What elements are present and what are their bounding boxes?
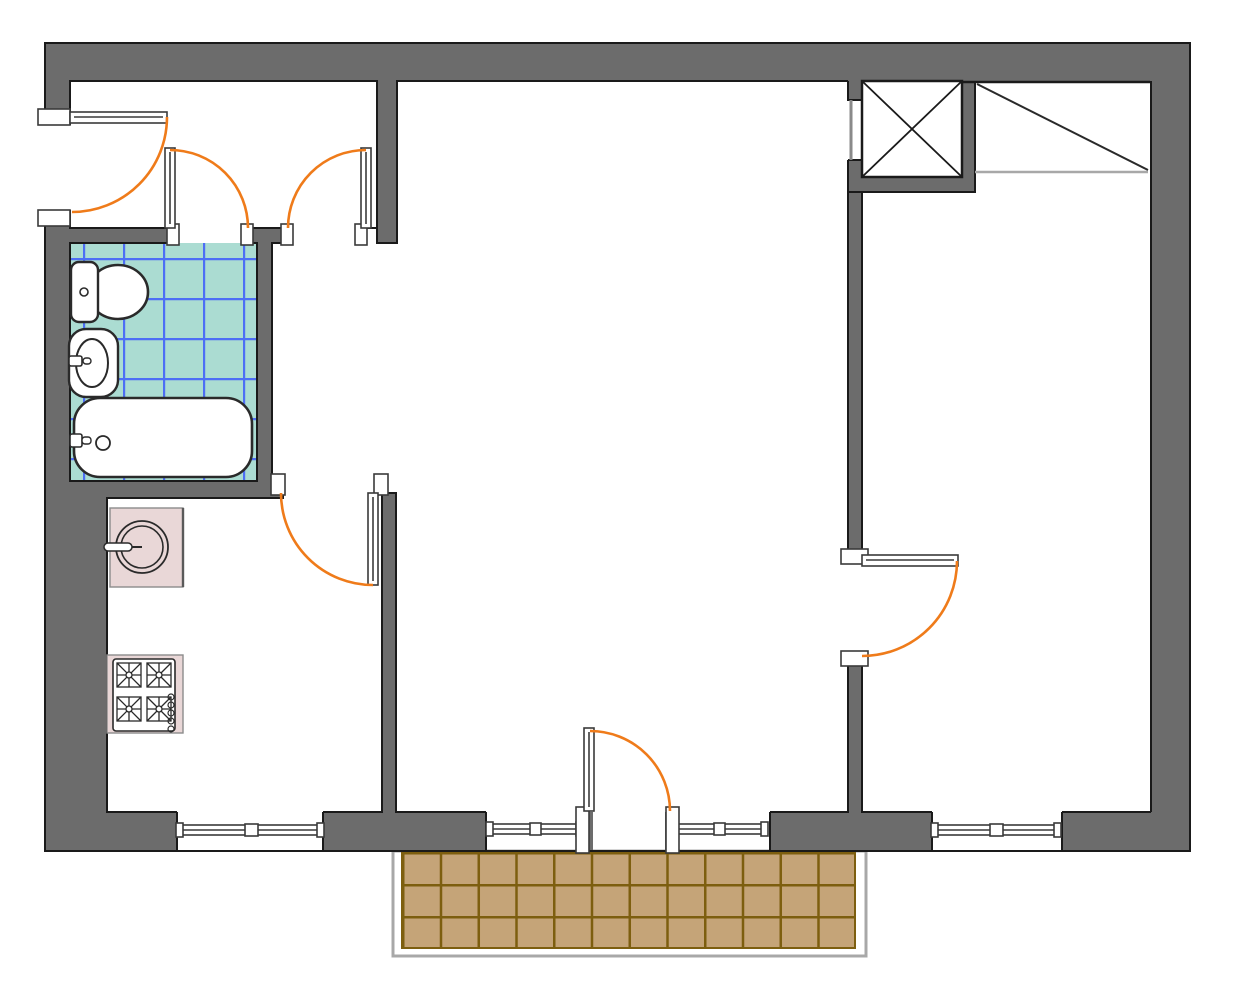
hallway-door — [361, 148, 371, 228]
wall-left-mid — [45, 210, 70, 481]
living-window-right — [669, 822, 768, 836]
wall-bottom-5 — [770, 812, 932, 851]
living-window-left — [486, 822, 583, 836]
wall-bottom-6 — [1062, 812, 1151, 851]
balcony — [393, 851, 866, 956]
kitchen-counter — [104, 508, 183, 587]
floor-plan — [0, 0, 1234, 1000]
wall-bathroom-top-left — [68, 228, 173, 243]
balcony-tiles — [402, 852, 855, 948]
wall-bottom-2 — [323, 812, 486, 851]
bedroom-window — [931, 823, 1061, 837]
wall-shaft-closet — [962, 81, 975, 192]
bathtub-icon — [70, 398, 252, 477]
wall-bottom-1 — [45, 812, 177, 851]
wall-bathroom-right — [257, 243, 272, 481]
wall-bedroom-lower — [848, 655, 862, 812]
wall-bathroom-bottom — [45, 481, 283, 498]
wall-hall-living — [377, 81, 397, 243]
wall-kitchen-living — [382, 493, 396, 812]
balcony-door — [584, 728, 594, 811]
wall-shaft-bottom — [848, 177, 975, 192]
floor-plan-canvas — [0, 0, 1234, 1000]
kitchen-window — [176, 823, 324, 837]
bedroom-door — [862, 555, 958, 566]
kitchen-faucet-icon — [104, 543, 132, 551]
wall-shaft-stub-top — [848, 81, 862, 100]
stove — [107, 655, 183, 733]
wall-bedroom-upper — [848, 192, 862, 557]
entrance-door — [70, 112, 167, 123]
wall-shaft-stub-bottom — [848, 160, 862, 177]
wall-left-lower — [45, 498, 107, 812]
elevator-shaft — [862, 81, 962, 177]
wash-basin-icon — [69, 329, 118, 397]
wall-right — [1151, 81, 1190, 851]
bathroom-door — [165, 148, 175, 228]
toilet-icon — [71, 262, 148, 322]
wall-top — [45, 43, 1190, 81]
kitchen-door — [368, 493, 378, 585]
